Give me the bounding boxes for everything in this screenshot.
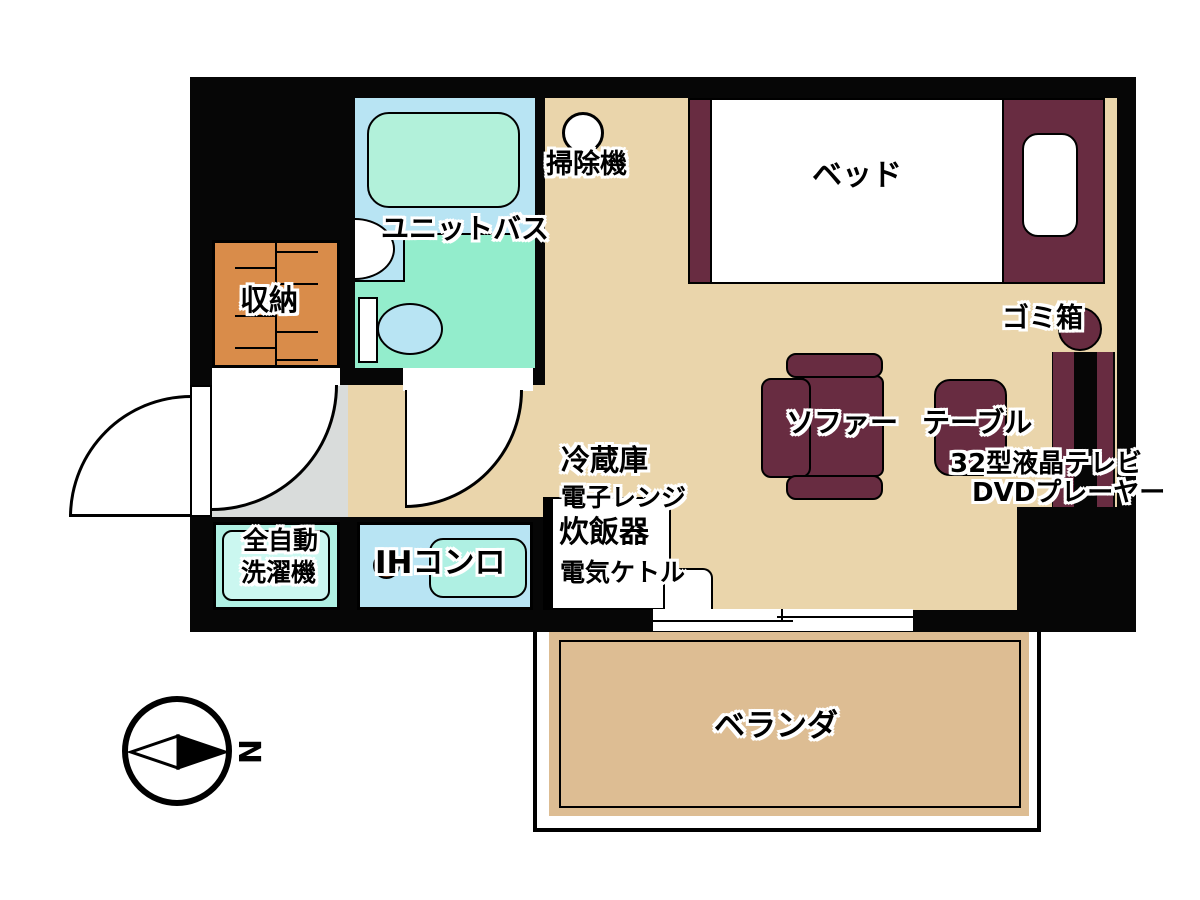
label-table: テーブル [922, 408, 1032, 437]
compass-needle-icon [128, 730, 228, 774]
fridge-unit [543, 497, 671, 610]
bathtub [367, 112, 520, 208]
label-unit-bath: ユニットバス [381, 214, 549, 243]
window-rail [777, 616, 913, 618]
storage-tick [276, 251, 318, 253]
vacuum-cleaner [562, 112, 604, 154]
label-washer-2: 洗濯機 [241, 560, 316, 586]
window-rail [653, 620, 793, 622]
label-tv: 32型液晶テレビ [950, 451, 1142, 478]
label-washer-1: 全自動 [243, 528, 318, 554]
storage-tick [276, 331, 318, 333]
label-veranda: ベランダ [714, 710, 838, 743]
storage-doorway [212, 368, 340, 386]
window-frame-tick [781, 609, 783, 621]
floorplan-canvas: N 掃除機 ベッド ユニットバス 収納 ゴミ箱 ソファー テーブル 32型液晶テ… [0, 0, 1200, 900]
compass-north-label: N [231, 739, 266, 764]
label-ih-stove: IHコンロ [375, 547, 505, 580]
wall-bump [1017, 507, 1136, 632]
label-kettle: 電気ケトル [560, 560, 685, 586]
label-rice-cooker: 炊飯器 [559, 517, 649, 549]
storage-tick [235, 347, 277, 349]
storage-tick [235, 267, 277, 269]
label-trash: ゴミ箱 [1002, 305, 1083, 333]
entrance-door-swing-outside [69, 395, 191, 517]
toilet-tank [358, 297, 378, 363]
toilet-bowl [377, 303, 443, 355]
label-dvd: DVDプレーヤー [972, 480, 1165, 507]
label-bed: ベッド [812, 160, 902, 192]
sofa-armrest [786, 475, 883, 500]
label-storage: 収納 [240, 285, 298, 315]
sliding-window [653, 609, 913, 631]
bed-pillow [1022, 133, 1078, 237]
label-microwave: 電子レンジ [561, 485, 686, 511]
label-sofa: ソファー [786, 408, 898, 437]
label-vacuum: 掃除機 [546, 151, 627, 179]
bath-doorway [403, 368, 533, 391]
bath-divider-h2 [355, 280, 405, 282]
sofa-armrest [786, 353, 883, 378]
entrance-door-leaf [190, 385, 212, 517]
storage-tick [276, 359, 318, 361]
label-fridge: 冷蔵庫 [561, 445, 648, 475]
